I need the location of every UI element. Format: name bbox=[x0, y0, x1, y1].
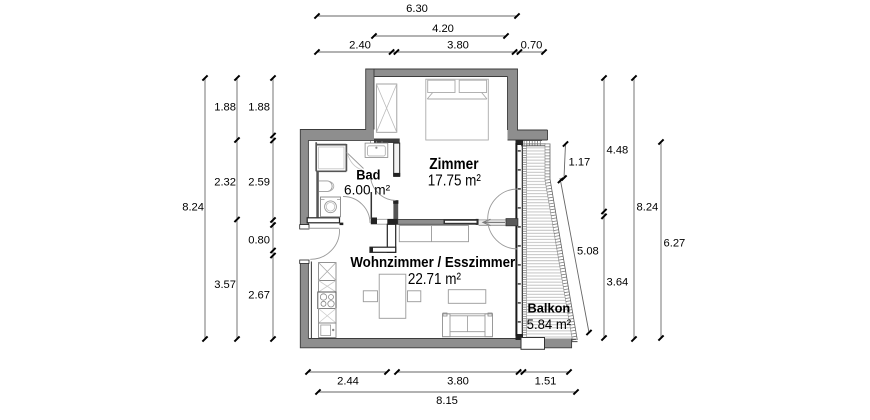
svg-text:Balkon: Balkon bbox=[528, 301, 571, 316]
svg-text:0.80: 0.80 bbox=[248, 235, 270, 247]
svg-text:3.80: 3.80 bbox=[447, 40, 469, 52]
svg-text:5.84 m²: 5.84 m² bbox=[527, 317, 572, 332]
svg-text:4.20: 4.20 bbox=[432, 23, 454, 35]
svg-text:2.59: 2.59 bbox=[248, 177, 270, 189]
svg-text:6.30: 6.30 bbox=[406, 3, 428, 15]
svg-text:4.48: 4.48 bbox=[607, 145, 629, 157]
svg-text:Wohnzimmer / Esszimmer: Wohnzimmer / Esszimmer bbox=[350, 255, 515, 271]
svg-text:Bad: Bad bbox=[356, 167, 380, 182]
svg-text:8.15: 8.15 bbox=[436, 395, 458, 407]
svg-text:2.40: 2.40 bbox=[349, 40, 371, 52]
svg-text:1.17: 1.17 bbox=[569, 157, 591, 169]
svg-text:5.08: 5.08 bbox=[577, 246, 599, 258]
svg-text:0.70: 0.70 bbox=[521, 40, 543, 52]
svg-text:2.67: 2.67 bbox=[248, 290, 270, 302]
svg-text:3.80: 3.80 bbox=[447, 376, 469, 388]
svg-text:1.88: 1.88 bbox=[214, 102, 236, 114]
svg-text:2.44: 2.44 bbox=[337, 376, 359, 388]
svg-text:1.51: 1.51 bbox=[535, 376, 557, 388]
svg-text:8.24: 8.24 bbox=[182, 202, 204, 214]
svg-text:17.75 m²: 17.75 m² bbox=[428, 173, 482, 190]
svg-text:6.27: 6.27 bbox=[664, 238, 686, 250]
svg-text:8.24: 8.24 bbox=[637, 202, 659, 214]
svg-text:3.64: 3.64 bbox=[607, 277, 629, 289]
svg-text:2.32: 2.32 bbox=[214, 177, 236, 189]
svg-text:6.00 m²: 6.00 m² bbox=[344, 183, 391, 198]
svg-text:1.88: 1.88 bbox=[248, 102, 270, 114]
svg-text:22.71 m²: 22.71 m² bbox=[408, 271, 462, 288]
svg-text:3.57: 3.57 bbox=[214, 279, 236, 291]
svg-text:Zimmer: Zimmer bbox=[429, 156, 478, 173]
